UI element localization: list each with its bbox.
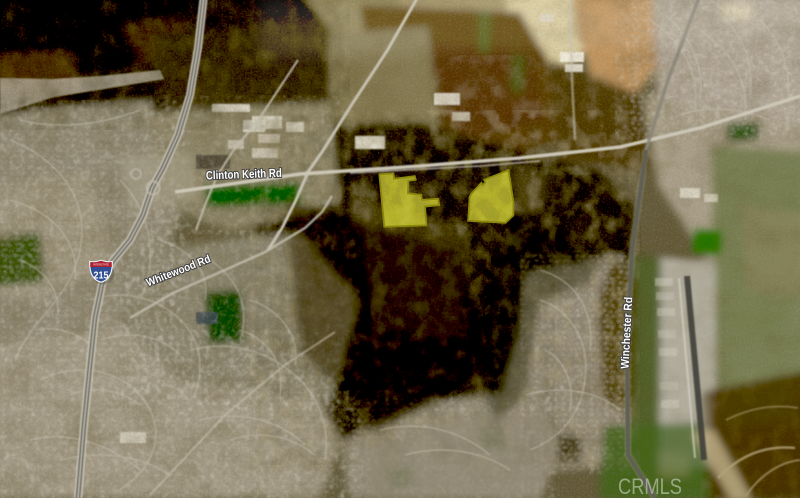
svg-text:CRMLS: CRMLS <box>618 474 682 498</box>
svg-text:INTERSTATE: INTERSTATE <box>93 262 109 266</box>
svg-text:215: 215 <box>94 270 109 281</box>
svg-text:Clinton Keith Rd: Clinton Keith Rd <box>206 166 282 183</box>
